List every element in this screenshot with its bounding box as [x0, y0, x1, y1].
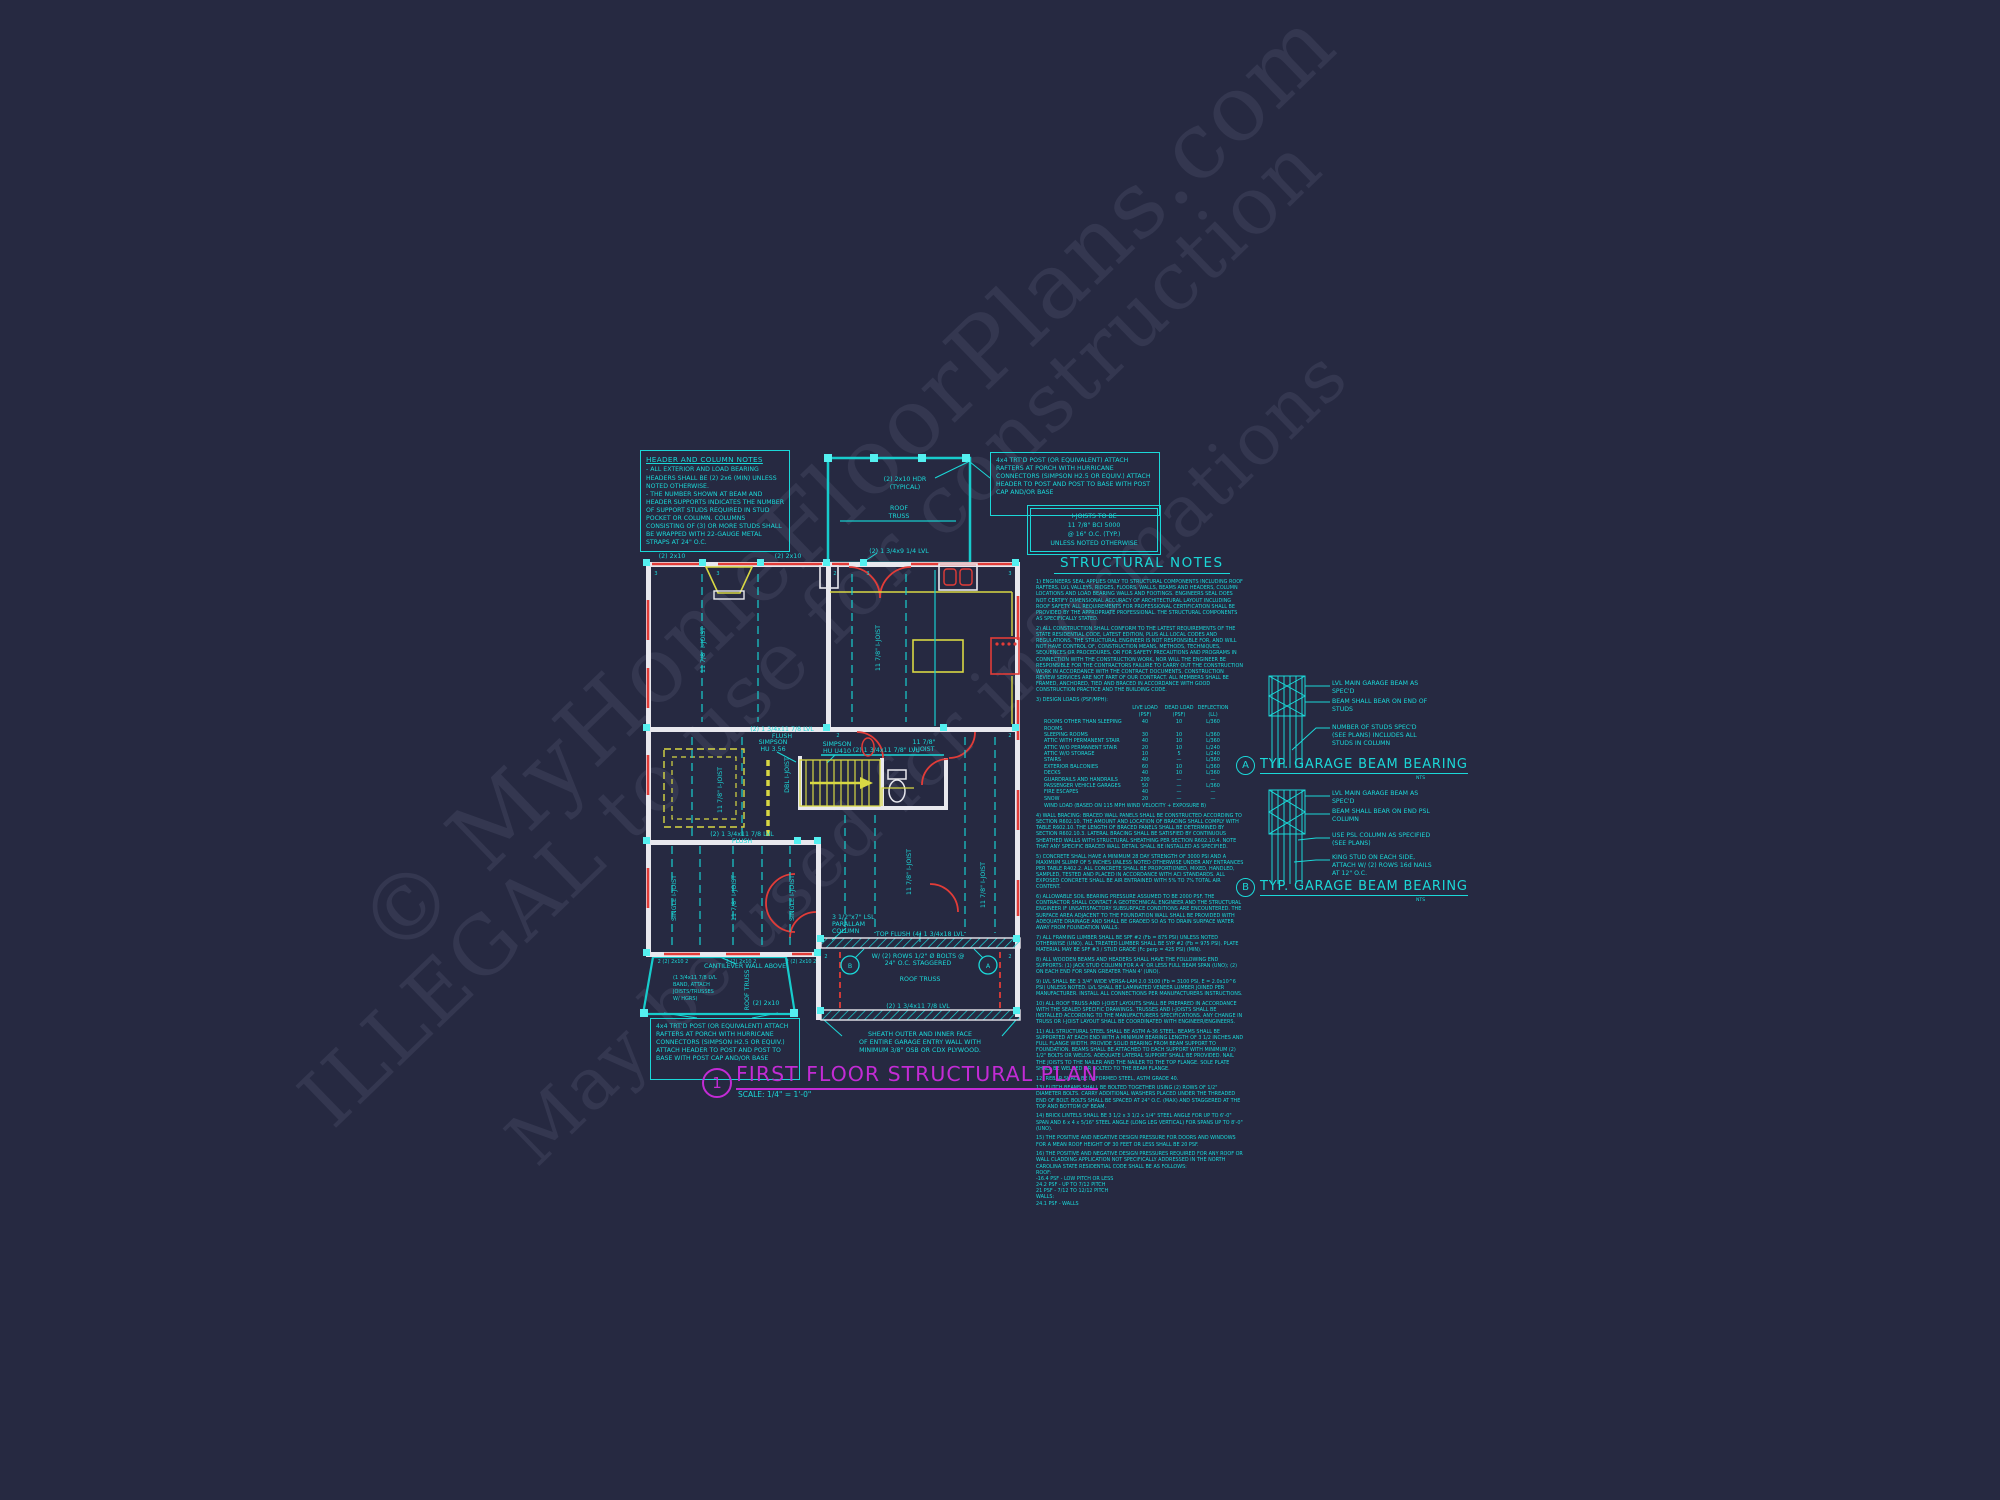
detail-a-callout: LVL MAIN GARAGE BEAM AS SPEC'D — [1332, 680, 1432, 696]
sheath-note: OF ENTIRE GARAGE ENTRY WALL WITH — [859, 1039, 981, 1046]
header-column-notes-box: HEADER AND COLUMN NOTES - ALL EXTERIOR A… — [640, 450, 790, 552]
ijoist-note-line: 11 7/8" BCI 5000 — [1036, 522, 1152, 531]
header-callout: (2) 2x10 — [775, 553, 802, 560]
detail-b-title-text: TYP. GARAGE BEAM BEARING — [1260, 879, 1468, 896]
structural-note-item: 16) THE POSITIVE AND NEGATIVE DESIGN PRE… — [1036, 1151, 1244, 1207]
fixtures — [820, 564, 1019, 802]
stud-count: 2 — [1008, 733, 1011, 739]
joist-label: 11 7/8" I-JOIST — [717, 767, 724, 813]
structural-note-item: 8) ALL WOODEN BEAMS AND HEADERS SHALL HA… — [1036, 957, 1244, 976]
detail-a-title: A TYP. GARAGE BEAM BEARING — [1236, 756, 1468, 775]
structural-note-item: 15) THE POSITIVE AND NEGATIVE DESIGN PRE… — [1036, 1135, 1244, 1147]
wind-load-row: WIND LOAD (BASED ON 115 MPH WIND VELOCIT… — [1036, 803, 1244, 809]
load-row: ROOMS OTHER THAN SLEEPING ROOMS4010L/360 — [1036, 719, 1244, 732]
load-row-value: 40 — [1128, 719, 1162, 732]
bolt-note: 24" O.C. STAGGERED — [885, 960, 952, 967]
joist-label: DBL I-JOIST — [784, 757, 791, 793]
bolt-note: W/ (2) ROWS 1/2" Ø BOLTS @ — [872, 952, 965, 960]
beam-label: FLUSH — [732, 838, 752, 845]
column-label: PARALLAM — [832, 921, 865, 928]
joist-label: 11 7/8" I-JOIST — [906, 849, 913, 895]
design-loads-table: 3) DESIGN LOADS (PSF/MPH): LIVE LOAD (PS… — [1036, 697, 1244, 809]
ijoist-note-line: @ 16" O.C. (TYP.) — [1036, 531, 1152, 540]
ijoist-note-line: I-JOISTS TO BE — [1036, 513, 1152, 522]
design-loads-rows: ROOMS OTHER THAN SLEEPING ROOMS4010L/360… — [1036, 719, 1244, 802]
porch-header-label: (2) 2x10 HDR — [884, 476, 927, 483]
detail-b-callout: USE PSL COLUMN AS SPECIFIED (SEE PLANS) — [1332, 832, 1432, 848]
hanger-label: HU 3.56 — [760, 746, 785, 753]
roof-truss-label: ROOF TRUSS — [744, 970, 751, 1011]
structural-note-item: 2) ALL CONSTRUCTION SHALL CONFORM TO THE… — [1036, 626, 1244, 694]
blueprint-page: { "watermark": { "line1": "© MyHomeFloor… — [0, 0, 2000, 1500]
detail-a-title-text: TYP. GARAGE BEAM BEARING — [1260, 757, 1468, 774]
roof-truss-label: ROOF — [890, 505, 908, 512]
load-row-value: L/360 — [1196, 719, 1230, 732]
column-label: 3 1/2"x7" LSL — [832, 914, 875, 921]
detail-b-title: B TYP. GARAGE BEAM BEARING — [1236, 878, 1468, 897]
joist-label: 11 7/8" I-JOIST — [980, 862, 987, 908]
post-note-text: 4x4 TRT'D POST (OR EQUIVALENT) ATTACH RA… — [996, 457, 1154, 497]
stud-count: 3 — [1008, 571, 1011, 577]
column-header: DEFLECTION (LL) — [1196, 705, 1230, 718]
post-note-text: 4x4 TRT'D POST (OR EQUIVALENT) ATTACH RA… — [656, 1023, 794, 1063]
lvl-label: (2) 1 3/4x9 1/4 LVL — [869, 548, 929, 555]
notes-box-title: HEADER AND COLUMN NOTES — [646, 455, 784, 464]
beam-label: TOP FLUSH (4) 1 3/4x18 LVL — [875, 931, 965, 938]
porch-header-label: (TYPICAL) — [890, 484, 920, 491]
cantilever-note: JOISTS/TRUSSES — [672, 989, 714, 995]
column-header: LIVE LOAD (PSF) — [1128, 705, 1162, 718]
joist-label: 11 7/8" — [912, 739, 935, 746]
structural-note-item: 7) ALL FRAMING LUMBER SHALL BE SPF #2 (F… — [1036, 935, 1244, 954]
detail-a-callout: BEAM SHALL BEAR ON END OF STUDS — [1332, 698, 1432, 714]
structural-note-item: 1) ENGINEERS SEAL APPLIES ONLY TO STRUCT… — [1036, 579, 1244, 622]
hanger-label: HU U410 — [823, 748, 851, 755]
header-callout: 2 (2) 2x10 2 — [786, 959, 817, 965]
stud-count: 3 — [716, 571, 719, 577]
hanger-label: SIMPSON — [759, 739, 788, 746]
detail-a-scale: NTS — [1416, 776, 1425, 781]
wall-headers-red — [648, 564, 1018, 954]
sheath-note: MINIMUM 3/8" OSB OR CDX PLYWOOD. — [859, 1047, 981, 1054]
load-row-label: SNOW — [1036, 796, 1128, 802]
stud-count: 2 — [836, 733, 839, 739]
beam-label: (2) 1 3/4x11 7/8 LVL — [886, 1003, 950, 1010]
header-callout: 2 (2) 2x10 2 — [658, 959, 689, 965]
notes-paragraph: - ALL EXTERIOR AND LOAD BEARING HEADERS … — [646, 466, 784, 490]
cantilever-note: W/ HGRS) — [673, 996, 698, 1002]
drawing-scale: SCALE: 1/4" = 1'-0" — [738, 1090, 811, 1099]
column-label: COLUMN — [832, 928, 860, 935]
structural-note-item: 5) CONCRETE SHALL HAVE A MINIMUM 28 DAY … — [1036, 854, 1244, 891]
detail-a-callout: NUMBER OF STUDS SPEC'D (SEE PLANS) INCLU… — [1332, 724, 1432, 747]
load-row-value: — — [1196, 796, 1230, 802]
joist-label: 11 7/8" I-JOIST — [731, 875, 738, 921]
ijoist-note-line: UNLESS NOTED OTHERWISE — [1036, 540, 1152, 549]
beam-label: (2) 1 3/4x11 7/8 LVL — [710, 831, 774, 838]
stud-count: 2 — [824, 954, 827, 960]
stairs — [800, 760, 880, 806]
joist-label: 11 7/8" I-JOIST — [700, 627, 707, 673]
sheath-note: SHEATH OUTER AND INNER FACE — [868, 1031, 972, 1038]
ijoist-note-box: I-JOISTS TO BE 11 7/8" BCI 5000 @ 16" O.… — [1030, 508, 1158, 552]
detail-b-graphic — [1269, 790, 1330, 884]
load-row-value: 20 — [1128, 796, 1162, 802]
load-row-label: ROOMS OTHER THAN SLEEPING ROOMS — [1036, 719, 1128, 732]
stud-count: 2 — [1008, 954, 1011, 960]
beam-label: (2) 1 3/4x11 7/8" LVL — [853, 747, 920, 754]
stud-count: 2 — [833, 571, 836, 577]
structural-notes-list: 4) WALL BRACING: BRACED WALL PANELS SHAL… — [1036, 813, 1244, 1207]
structural-note-item: 6) ALLOWABLE SOIL BEARING PRESSURE ASSUM… — [1036, 894, 1244, 931]
joist-label: SINGLE I-JOIST — [789, 875, 796, 921]
structural-note-item: 10) ALL ROOF TRUSS AND I-JOIST LAYOUTS S… — [1036, 1001, 1244, 1026]
structural-notes-list: 1) ENGINEERS SEAL APPLIES ONLY TO STRUCT… — [1036, 579, 1244, 694]
detail-a-graphic — [1269, 676, 1330, 768]
design-loads-heading: 3) DESIGN LOADS (PSF/MPH): — [1036, 697, 1244, 703]
structural-note-item: 4) WALL BRACING: BRACED WALL PANELS SHAL… — [1036, 813, 1244, 850]
detail-a-marker: A — [1236, 756, 1255, 775]
design-loads-columns: LIVE LOAD (PSF) DEAD LOAD (PSF) DEFLECTI… — [1036, 705, 1244, 718]
beam-label: (2) 1 3/4x11 7/8 LVL — [750, 726, 814, 733]
header-callout: (2) 2x10 — [659, 553, 686, 560]
beam-label: FLUSH — [772, 733, 792, 740]
detail-b-marker: B — [1236, 878, 1255, 897]
roof-truss-label: ROOF TRUSS — [900, 976, 941, 983]
detail-b-callout: KING STUD ON EACH SIDE, ATTACH W/ (2) RO… — [1332, 854, 1432, 877]
stud-count: 3 — [654, 571, 657, 577]
header-callout: (2) 2x10 — [753, 1000, 780, 1007]
drawing-title: FIRST FLOOR STRUCTURAL PLAN — [736, 1062, 1098, 1090]
stud-count: 3 — [866, 571, 869, 577]
detail-b-callout: LVL MAIN GARAGE BEAM AS SPEC'D — [1332, 790, 1432, 806]
detail-b-scale: NTS — [1416, 898, 1425, 903]
column-header: DEAD LOAD (PSF) — [1162, 705, 1196, 718]
cantilever-note: BAND, ATTACH — [673, 982, 710, 988]
section-marker-b: B — [848, 963, 852, 970]
cantilever-note: (1 3/4x11 7/8 LVL — [673, 975, 717, 981]
joist-label: 11 7/8" I-JOIST — [875, 625, 882, 671]
notes-paragraph: - THE NUMBER SHOWN AT BEAM AND HEADER SU… — [646, 491, 784, 547]
post-note-box-top: 4x4 TRT'D POST (OR EQUIVALENT) ATTACH RA… — [990, 452, 1160, 516]
header-callout: 2 (2) 2x10 2 — [726, 959, 757, 965]
load-row: SNOW20—— — [1036, 796, 1244, 802]
load-row-value: — — [1162, 796, 1196, 802]
load-row-value: 10 — [1162, 719, 1196, 732]
structural-note-item: 14) BRICK LINTELS SHALL BE 3 1/2 x 3 1/2… — [1036, 1113, 1244, 1132]
joist-label: I-JOIST — [914, 746, 935, 753]
roof-truss-label: TRUSS — [888, 513, 910, 520]
section-marker-a: A — [986, 963, 991, 970]
sheet-number-marker: 1 — [702, 1068, 732, 1098]
structural-notes-title: STRUCTURAL NOTES — [1054, 555, 1230, 574]
detail-b-callout: BEAM SHALL BEAR ON END PSL COLUMN — [1332, 808, 1432, 824]
structural-notes: STRUCTURAL NOTES 1) ENGINEERS SEAL APPLI… — [1036, 552, 1244, 1210]
structural-note-item: 9) LVL SHALL BE 1 3/4" WIDE VERSA-LAM 2.… — [1036, 979, 1244, 998]
joist-label: SINGLE I-JOIST — [671, 875, 678, 921]
hanger-label: SIMPSON — [823, 741, 852, 748]
